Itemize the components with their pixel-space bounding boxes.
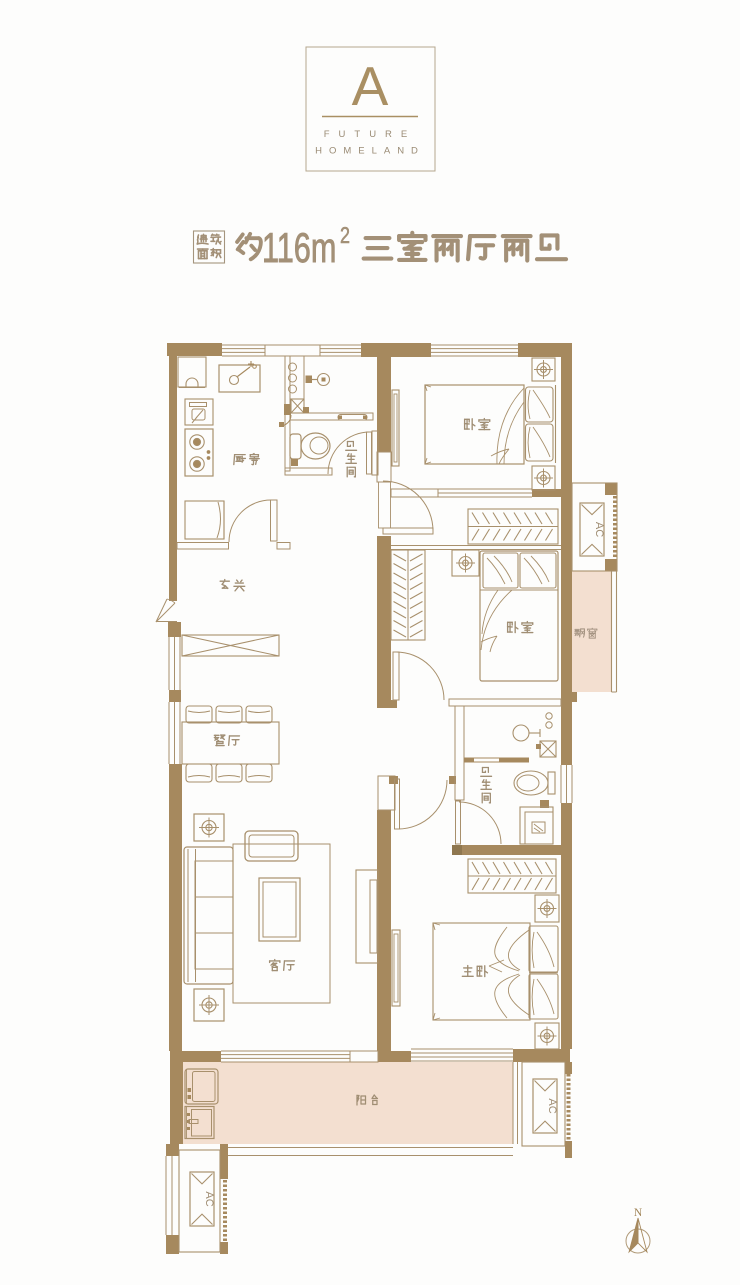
svg-text:AC: AC (546, 1098, 558, 1113)
svg-text:2: 2 (340, 223, 350, 249)
svg-text:A: A (352, 55, 389, 117)
svg-text:AC: AC (593, 522, 605, 537)
svg-text:116m: 116m (262, 224, 336, 271)
svg-text:FUTURE: FUTURE (324, 129, 417, 140)
svg-text:AC: AC (203, 1191, 215, 1206)
svg-text:HOMELAND: HOMELAND (315, 146, 425, 157)
svg-text:N: N (634, 1207, 643, 1219)
